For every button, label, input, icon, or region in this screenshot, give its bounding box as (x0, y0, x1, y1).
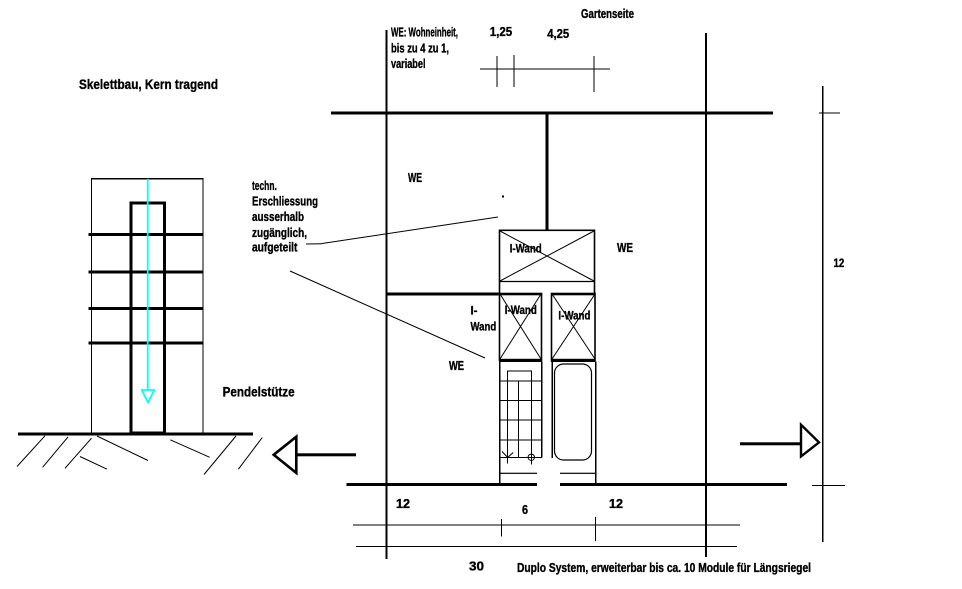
svg-text:WE: WE (617, 241, 633, 255)
svg-text:techn.: techn. (252, 179, 277, 193)
svg-text:Skelettbau, Kern tragend: Skelettbau, Kern tragend (79, 76, 218, 92)
svg-text:ausserhalb: ausserhalb (252, 210, 304, 224)
svg-text:6: 6 (522, 503, 528, 517)
svg-text:I-Wand: I-Wand (505, 303, 537, 317)
svg-text:12: 12 (834, 256, 845, 270)
svg-text:1,25: 1,25 (490, 25, 513, 39)
svg-text:30: 30 (469, 560, 484, 574)
svg-text:Erschliessung: Erschliessung (252, 195, 318, 209)
svg-text:Duplo System, erweiterbar bis: Duplo System, erweiterbar bis ca. 10 Mod… (517, 561, 811, 575)
svg-text:4,25: 4,25 (547, 27, 569, 41)
svg-text:aufgeteilt: aufgeteilt (252, 241, 298, 255)
svg-text:Wand: Wand (471, 320, 497, 334)
svg-text:WE: WE (408, 171, 422, 185)
svg-text:WE: WE (449, 359, 464, 373)
svg-text:I-: I- (471, 304, 478, 318)
svg-text:zugänglich,: zugänglich, (252, 226, 307, 240)
svg-text:Pendelstütze: Pendelstütze (223, 384, 295, 399)
svg-text:variabel: variabel (391, 57, 426, 71)
svg-text:I-Wand: I-Wand (558, 309, 590, 323)
svg-text:12: 12 (396, 497, 410, 511)
svg-text:Gartenseite: Gartenseite (581, 7, 634, 21)
svg-text:bis zu 4 zu 1,: bis zu 4 zu 1, (391, 41, 449, 55)
svg-text:WE: Wohneinheit,: WE: Wohneinheit, (391, 25, 458, 39)
svg-text:12: 12 (609, 497, 623, 511)
svg-text:I-Wand: I-Wand (510, 242, 542, 256)
